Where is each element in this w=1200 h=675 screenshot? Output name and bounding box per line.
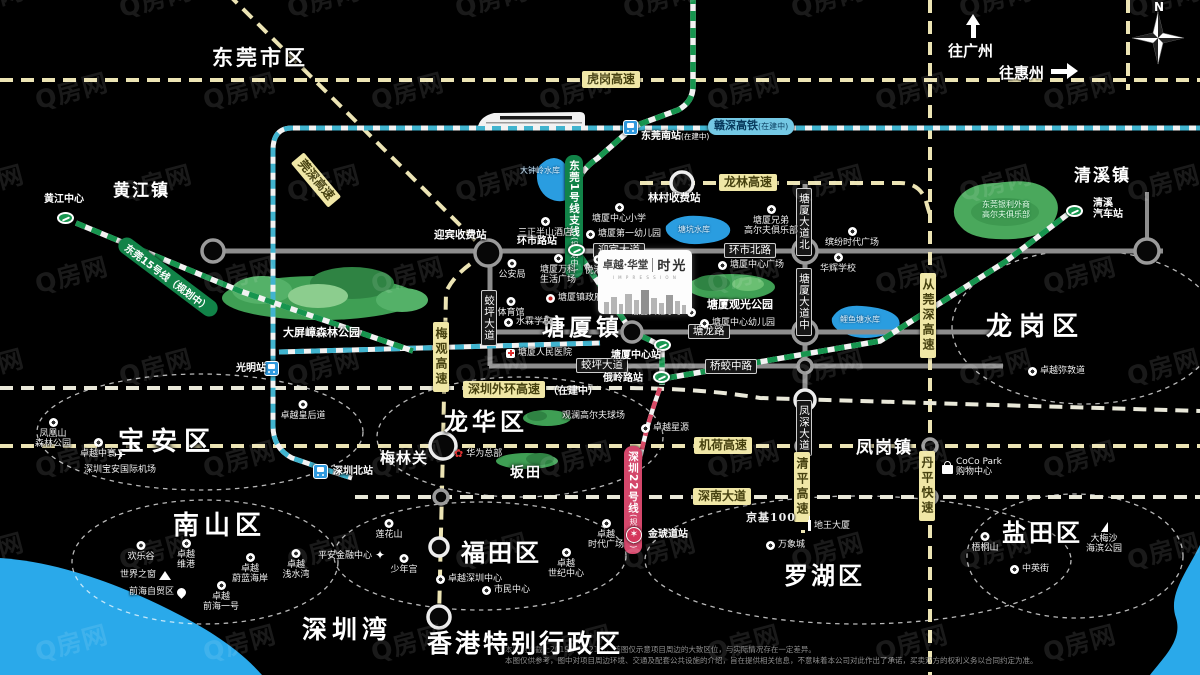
lake-label: 塘坑水库 <box>678 224 710 235</box>
district-label: 深圳湾 <box>302 610 392 646</box>
poi: 卓越 世纪中心 <box>548 548 584 579</box>
poi-label: 卓越 前海一号 <box>203 592 239 612</box>
poi-label: 卓越弥敦道 <box>1040 366 1085 376</box>
poi-label: 卓越星源 <box>653 423 689 433</box>
highway-name: 梅观高速 <box>433 322 449 392</box>
park-label: 塘厦观光公园 <box>707 296 773 312</box>
station-label: 塘厦中心站 <box>611 350 661 361</box>
poi-label: 卓越 时代广场 <box>588 530 624 550</box>
poi: 卓越 前海一号 <box>203 581 239 612</box>
station-label: 清溪 汽车站 <box>1093 198 1123 220</box>
poi-label: 卓越 维港 <box>177 550 195 570</box>
poi: 卓越弥敦道 <box>1028 366 1085 376</box>
b-icon <box>1010 565 1019 574</box>
poi-label: 卓越 浅水湾 <box>282 560 309 580</box>
b-icon <box>245 553 254 562</box>
poi-label: 塘厦中心小学 <box>592 214 646 224</box>
highway-label: 清平高速 <box>794 452 810 522</box>
skyline-illustration <box>602 288 688 314</box>
b-icon <box>136 541 145 550</box>
b-icon <box>641 424 650 433</box>
poi-label: 平安金融中心 <box>318 551 372 561</box>
gov-icon <box>546 294 555 303</box>
highway-label: 梅观高速 <box>433 322 449 392</box>
b-icon <box>506 297 515 306</box>
b-icon <box>553 254 562 263</box>
toll-label: 林村收费站 <box>648 190 701 205</box>
poi: 莲花山 <box>375 519 402 540</box>
poi-label: 塘厦人民医院 <box>518 348 572 358</box>
poi: 体育馆 <box>497 297 524 318</box>
poi: 大梅沙 海滨公园 <box>1086 522 1122 554</box>
hwy-outer-ring <box>0 388 1200 411</box>
poi-label: 地王大厦 <box>814 521 850 531</box>
station-label: 黄江中心 <box>44 194 84 205</box>
fish-icon <box>175 586 188 599</box>
b-icon <box>614 203 623 212</box>
b-icon <box>700 319 709 328</box>
poi-label: 塘厦镇政府 <box>558 293 603 303</box>
b-icon <box>766 541 775 550</box>
district-label: 坂田 <box>510 462 542 482</box>
highway-name: 丹平快速 <box>919 451 935 521</box>
rail-label: 赣深高铁(在建中) <box>708 118 794 135</box>
poi-label: 前海自贸区 <box>129 587 174 597</box>
poi-label: 卓越皇后道 <box>280 411 325 421</box>
road-label: 桥蛟中路 <box>705 359 757 374</box>
pyr-icon <box>159 571 171 580</box>
highway-name: 虎岗高速 <box>582 71 640 88</box>
b-icon <box>507 259 516 268</box>
district-label: 盐田区 <box>1002 513 1083 548</box>
poi: 中英街 <box>1010 564 1049 574</box>
station-icon <box>1066 205 1083 217</box>
poi: 华为总部 <box>454 448 502 460</box>
poi: 塘厦万科 生活广场 <box>540 254 576 285</box>
poi: 卓越 维港 <box>177 539 195 570</box>
poi: 深圳宝安国际机场 <box>84 448 156 475</box>
b-icon <box>1028 367 1037 376</box>
poi-label: 凤凰山 森林公园 <box>35 429 71 449</box>
highway-name: 机荷高速 <box>694 437 752 454</box>
b-icon <box>833 253 842 262</box>
poi: 水霖学校 <box>504 317 552 327</box>
poi: 缤纷时代广场 <box>825 227 879 248</box>
poi: 市民中心 <box>482 585 530 595</box>
poi-label: 京基100 <box>746 513 796 523</box>
poi-label: 华辉学校 <box>820 264 856 274</box>
poi: 梧桐山 <box>971 532 998 553</box>
station-icon <box>568 244 585 256</box>
road-label: 塘厦大道北 <box>796 188 812 256</box>
b-icon <box>93 438 102 447</box>
poi: 地王大厦 <box>808 520 850 531</box>
poi: 凤凰山 森林公园 <box>35 418 71 449</box>
district-label: 罗湖区 <box>784 556 865 591</box>
project-name: 时光 <box>657 255 687 274</box>
poi-label: 梧桐山 <box>971 543 998 553</box>
poi: 塘厦镇政府 <box>546 293 603 303</box>
poi-label: 少年宫 <box>390 565 417 575</box>
district-label: 凤岗镇 <box>856 433 913 458</box>
b-icon <box>561 548 570 557</box>
poi: 少年宫 <box>390 554 417 575</box>
station-status: (在建中) <box>681 132 709 141</box>
poi: 平安金融中心 <box>318 549 385 562</box>
highway-name: 龙林高速 <box>719 174 777 191</box>
b-icon <box>766 205 775 214</box>
poi: 塘厦中心幼儿园 <box>700 318 775 328</box>
station-label: 金琥道站 <box>648 529 688 540</box>
direction-huizhou: 往惠州 <box>999 62 1044 83</box>
b-icon <box>291 549 300 558</box>
b-icon <box>436 575 445 584</box>
b-icon <box>718 261 727 270</box>
lake-label: 鲤鱼塘水库 <box>840 314 880 325</box>
compass-n-label: N <box>1154 0 1164 14</box>
b-icon <box>399 554 408 563</box>
b-icon <box>482 586 491 595</box>
poi-label: 欢乐谷 <box>127 552 154 562</box>
station-icon <box>57 212 74 224</box>
sail-icon <box>1100 522 1107 532</box>
poi-label: 塘厦兄弟 高尔夫俱乐部 <box>744 216 798 236</box>
district-label: 龙华区 <box>444 402 528 437</box>
poi-label: 中英街 <box>1022 564 1049 574</box>
district-label: 福田区 <box>461 533 542 568</box>
district-label: 清溪镇 <box>1074 161 1131 186</box>
plane-icon <box>114 448 127 463</box>
poi: 塘厦人民医院 <box>506 348 572 358</box>
compass: N <box>1128 2 1188 72</box>
rail-status: (在建中) <box>758 122 788 131</box>
poi: 前海自贸区 <box>129 587 186 597</box>
toll-label: 迎宾收费站 <box>434 227 487 242</box>
poi: 卓越深圳中心 <box>436 574 502 584</box>
b-icon <box>181 539 190 548</box>
poi-label: 卓越 世纪中心 <box>548 559 584 579</box>
poi-label: 世界之窗 <box>120 570 156 580</box>
station-icon <box>264 361 279 376</box>
b-icon <box>504 318 513 327</box>
b-icon <box>847 227 856 236</box>
poi: 卓越皇后道 <box>280 400 325 421</box>
poi: 公安局 <box>498 259 525 280</box>
poi: 观澜高尔夫球场 <box>562 411 625 421</box>
poi: CoCo Park 购物中心 <box>942 457 1002 477</box>
station-icon <box>623 120 638 135</box>
poi: 三正半山酒店 <box>518 217 572 238</box>
poi-label: 塘厦中心广场 <box>730 260 784 270</box>
poi-label: 市民中心 <box>494 585 530 595</box>
district-label: 龙岗区 <box>986 306 1085 343</box>
poi-label: 缤纷时代广场 <box>825 238 879 248</box>
poi-label: 观澜高尔夫球场 <box>562 411 625 421</box>
bag-icon <box>942 465 953 474</box>
poi: 卓越 时代广场 <box>588 519 624 550</box>
station-label: 深圳北站 <box>333 466 373 477</box>
poi-label: 卓越深圳中心 <box>448 574 502 584</box>
poi: 世界之窗 <box>120 570 171 580</box>
b-icon <box>298 400 307 409</box>
direction-guangzhou: 往广州 <box>948 40 993 61</box>
highway-label: 深南大道 <box>693 488 751 505</box>
poi: 京基100 <box>746 513 796 523</box>
road-label: 凤深大道 <box>796 400 812 456</box>
highway-label: 深圳外环高速（在建中） <box>463 381 598 398</box>
district-label: 南山区 <box>173 505 266 542</box>
district-label: 东莞市区 <box>212 42 308 72</box>
poi: 华辉学校 <box>820 253 856 274</box>
star-icon <box>375 549 385 562</box>
park-label: 大屏嶂森林公园 <box>283 324 360 340</box>
road-label: 蛟坪大道 <box>481 290 497 346</box>
logo-divider <box>652 258 653 272</box>
poi: 卓越 蔚蓝海岸 <box>232 553 268 584</box>
poi-label: 莲花山 <box>375 530 402 540</box>
highway-label: 机荷高速 <box>694 437 752 454</box>
arrow-right-icon <box>1051 63 1086 79</box>
road-label: 环市北路 <box>724 243 776 258</box>
station-icon <box>653 371 670 383</box>
poi-label: 大梅沙 海滨公园 <box>1086 534 1122 554</box>
lake-label: 大钟岭水库 <box>520 165 560 176</box>
highway-label: 虎岗高速 <box>582 71 640 88</box>
b-icon <box>48 418 57 427</box>
station-icon <box>626 527 642 543</box>
poi-label: 公安局 <box>498 270 525 280</box>
poi-label: 塘厦中心幼儿园 <box>712 318 775 328</box>
b-icon <box>216 581 225 590</box>
logo-tagline: I M P R E S S I O N <box>613 275 678 280</box>
highway-status: （在建中） <box>548 382 598 397</box>
poi: 卓越 浅水湾 <box>282 549 309 580</box>
poi-label: 水霖学校 <box>516 317 552 327</box>
highway-name: 深圳外环高速 <box>463 381 545 398</box>
hosp-icon <box>506 349 515 358</box>
poi-label: 万象城 <box>778 540 805 550</box>
poi-label: 东莞银利外商 高尔夫俱乐部 <box>982 200 1030 220</box>
flower-icon <box>454 448 463 460</box>
poi: 东莞银利外商 高尔夫俱乐部 <box>982 200 1030 220</box>
b-icon <box>601 519 610 528</box>
poi: 塘厦中心小学 <box>592 203 646 224</box>
highway-label: 丹平快速 <box>919 451 935 521</box>
poi: 塘厦兄弟 高尔夫俱乐部 <box>744 205 798 236</box>
highway-name: 从莞深高速 <box>920 273 936 358</box>
station-label: 环市路站 <box>517 236 557 247</box>
poi: 塘厦第一幼儿园 <box>586 229 661 239</box>
b-icon <box>980 532 989 541</box>
poi: 万象城 <box>766 540 805 550</box>
b-icon <box>540 217 549 226</box>
arrow-up-icon <box>966 7 980 38</box>
brand-name: 卓越·华堂 <box>603 257 649 272</box>
highway-name: 深南大道 <box>693 488 751 505</box>
district-label: 梅林关 <box>380 447 428 468</box>
b-icon <box>384 519 393 528</box>
tower-icon <box>808 520 811 531</box>
poi-label: 华为总部 <box>466 449 502 459</box>
district-label: 香港特别行政区 <box>427 624 623 660</box>
poi-label: 塘厦万科 生活广场 <box>540 265 576 285</box>
b-icon <box>586 230 595 239</box>
district-label: 黄江镇 <box>113 176 170 201</box>
station-label: 俄岭路站 <box>603 373 643 384</box>
road-label: 塘厦大道中 <box>796 268 812 336</box>
poi-label: CoCo Park 购物中心 <box>956 457 1002 477</box>
poi-label: 深圳宝安国际机场 <box>84 465 156 475</box>
highway-label: 龙林高速 <box>719 174 777 191</box>
highway-label: 从莞深高速 <box>920 273 936 358</box>
location-map: 卓越·华堂 时光 I M P R E S S I O N N 往广州 往惠州 本… <box>0 0 1200 675</box>
station-icon <box>313 464 328 479</box>
poi: 欢乐谷 <box>127 541 154 562</box>
station-label: 光明站 <box>236 363 266 374</box>
poi-label: 塘厦第一幼儿园 <box>598 229 661 239</box>
poi: 卓越星源 <box>641 423 689 433</box>
poi: 塘厦中心广场 <box>718 260 784 270</box>
highway-name: 清平高速 <box>794 452 810 522</box>
train-icon <box>478 112 585 126</box>
property-logo: 卓越·华堂 时光 I M P R E S S I O N <box>598 250 692 314</box>
station-label: 东莞南站(在建中) <box>641 131 709 142</box>
